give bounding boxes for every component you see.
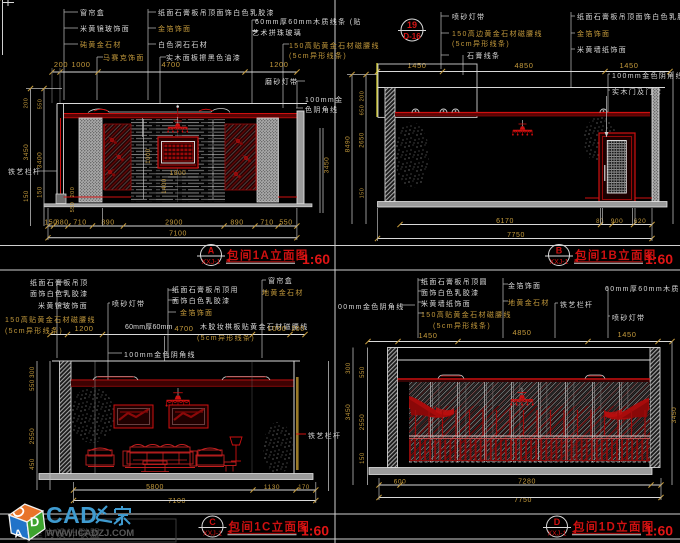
- svg-text:包间1A立面图: 包间1A立面图: [226, 248, 309, 262]
- svg-text:喷砂灯带: 喷砂灯带: [112, 299, 145, 308]
- svg-text:XXJ-1: XXJ-1: [547, 531, 566, 538]
- svg-text:1450: 1450: [408, 61, 427, 70]
- svg-text:窗帘盒: 窗帘盒: [268, 276, 293, 285]
- svg-text:铁艺栏杆: 铁艺栏杆: [8, 167, 41, 176]
- svg-text:7100: 7100: [168, 498, 186, 505]
- svg-text:金箔饰面: 金箔饰面: [158, 24, 191, 33]
- svg-text:面饰白色乳胶漆: 面饰白色乳胶漆: [421, 288, 479, 297]
- svg-text:60mm厚60mm: 60mm厚60mm: [125, 323, 173, 331]
- svg-text:A: A: [208, 246, 215, 256]
- svg-text:艺术拼珠玻璃: 艺术拼珠玻璃: [252, 28, 302, 37]
- svg-text:2550: 2550: [359, 414, 366, 431]
- svg-text:1400: 1400: [162, 178, 168, 194]
- svg-text:金箔饰面: 金箔饰面: [180, 308, 213, 317]
- svg-text:(5cm异形线条): (5cm异形线条): [433, 321, 491, 330]
- svg-text:纸面石膏板吊顶面饰白色乳胶漆: 纸面石膏板吊顶面饰白色乳胶漆: [158, 8, 275, 17]
- svg-text:B: B: [556, 246, 563, 256]
- svg-text:XXJ-1: XXJ-1: [201, 259, 220, 266]
- svg-text:550: 550: [70, 202, 76, 213]
- svg-text:白色洞石石材: 白色洞石石材: [158, 40, 208, 49]
- svg-text:1:60: 1:60: [645, 523, 673, 539]
- svg-text:1:60: 1:60: [302, 251, 330, 267]
- svg-text:C: C: [209, 517, 216, 527]
- svg-text:1200: 1200: [270, 60, 289, 69]
- svg-text:1:60: 1:60: [301, 523, 329, 539]
- svg-text:D: D: [554, 517, 561, 527]
- svg-text:200: 200: [24, 98, 30, 109]
- svg-text:金箔饰面: 金箔饰面: [577, 29, 610, 38]
- svg-text:米黄墙纸饰面: 米黄墙纸饰面: [421, 299, 471, 308]
- svg-text:00mm金色阴角线: 00mm金色阴角线: [338, 302, 405, 311]
- svg-text:150高贴黄金石材磁腰线: 150高贴黄金石材磁腰线: [5, 315, 96, 324]
- svg-text:100mm金色阴角线: 100mm金色阴角线: [124, 350, 196, 359]
- svg-text:150: 150: [24, 190, 30, 202]
- svg-text:D: D: [29, 514, 39, 529]
- svg-text:7750: 7750: [507, 232, 525, 239]
- svg-text:米黄镜玻饰面: 米黄镜玻饰面: [80, 24, 130, 33]
- svg-text:300: 300: [346, 362, 352, 374]
- svg-text:XXJ-1: XXJ-1: [203, 531, 222, 538]
- svg-text:7750: 7750: [514, 497, 532, 504]
- svg-text:1800: 1800: [170, 170, 187, 177]
- svg-text:砘黄金石材: 砘黄金石材: [80, 40, 122, 49]
- svg-text:1450: 1450: [419, 331, 438, 340]
- svg-text:200: 200: [54, 60, 68, 69]
- svg-text:150: 150: [360, 452, 366, 464]
- svg-text:A: A: [14, 528, 23, 541]
- svg-text:60mm厚60mm木质线条 (贴: 60mm厚60mm木质线条 (贴: [605, 284, 680, 293]
- svg-text:19: 19: [407, 20, 417, 30]
- svg-text:150高贴黄金石材磁腰线: 150高贴黄金石材磁腰线: [289, 41, 380, 50]
- svg-text:XXJ-1: XXJ-1: [549, 259, 568, 266]
- svg-text:150高贴黄金石材磁腰线: 150高贴黄金石材磁腰线: [421, 310, 512, 319]
- svg-text:150高边黄金石材磁腰线: 150高边黄金石材磁腰线: [452, 29, 543, 38]
- svg-text:200: 200: [291, 326, 304, 333]
- svg-text:7100: 7100: [169, 231, 187, 238]
- svg-text:3450: 3450: [345, 404, 352, 421]
- svg-text:7280: 7280: [518, 479, 536, 486]
- svg-text:650: 650: [360, 105, 366, 116]
- svg-text:100mm金: 100mm金: [305, 95, 343, 104]
- svg-text:150: 150: [38, 186, 44, 198]
- svg-text:铁艺栏杆: 铁艺栏杆: [560, 300, 593, 309]
- svg-text:1450: 1450: [618, 330, 637, 339]
- svg-text:金箔饰面: 金箔饰面: [508, 281, 541, 290]
- svg-text:3400: 3400: [37, 152, 44, 169]
- svg-text:300: 300: [30, 366, 36, 378]
- svg-text:喷砂灯带: 喷砂灯带: [452, 12, 485, 21]
- svg-text:(5cm异形线条): (5cm异形线条): [5, 326, 63, 335]
- svg-text:WWW.ICADZJ.COM: WWW.ICADZJ.COM: [46, 528, 134, 539]
- svg-text:2650: 2650: [360, 132, 366, 148]
- svg-text:200: 200: [360, 91, 366, 102]
- svg-text:色阴角线: 色阴角线: [305, 105, 338, 114]
- svg-text:地黄金石材: 地黄金石材: [508, 298, 550, 307]
- svg-text:马赛克饰面: 马赛克饰面: [103, 53, 145, 62]
- svg-text:4700: 4700: [175, 324, 194, 333]
- svg-text:纸面石膏板吊顶用: 纸面石膏板吊顶用: [172, 285, 239, 294]
- svg-text:(5cm异形线条): (5cm异形线条): [289, 51, 347, 60]
- svg-text:CAD: CAD: [46, 502, 97, 528]
- svg-text:包间1C立面图: 包间1C立面图: [228, 520, 311, 534]
- svg-text:4850: 4850: [515, 61, 534, 70]
- svg-text:面饰白色乳胶漆: 面饰白色乳胶漆: [30, 289, 88, 298]
- svg-text:3450: 3450: [324, 157, 331, 174]
- svg-text:6170: 6170: [496, 218, 514, 225]
- svg-text:D-16: D-16: [403, 32, 421, 41]
- svg-text:450: 450: [30, 458, 36, 470]
- svg-text:包间1D立面图: 包间1D立面图: [572, 520, 655, 534]
- svg-text:8490: 8490: [345, 136, 352, 153]
- svg-text:(5cm异形线条): (5cm异形线条): [452, 39, 510, 48]
- svg-text:550: 550: [360, 366, 366, 378]
- svg-text:3450: 3450: [671, 407, 678, 424]
- svg-text:窗帘盒: 窗帘盒: [80, 8, 105, 17]
- svg-text:1:60: 1:60: [645, 251, 673, 267]
- svg-text:4700: 4700: [162, 60, 181, 69]
- svg-text:磨砂灯带: 磨砂灯带: [265, 77, 298, 86]
- svg-text:60mm厚60mm木质线条 (贴: 60mm厚60mm木质线条 (贴: [255, 17, 362, 26]
- svg-text:1450: 1450: [620, 61, 639, 70]
- svg-text:550: 550: [38, 99, 44, 110]
- svg-text:米黄镜玻饰面: 米黄镜玻饰面: [38, 301, 88, 310]
- svg-text:1000: 1000: [146, 148, 152, 164]
- svg-text:620: 620: [634, 218, 647, 225]
- svg-text:米黄墙纸饰面: 米黄墙纸饰面: [577, 45, 627, 54]
- svg-text:3450: 3450: [23, 144, 30, 161]
- svg-text:1000: 1000: [72, 60, 91, 69]
- svg-text:纸面石膏板吊顶面饰白色乳胶漆: 纸面石膏板吊顶面饰白色乳胶漆: [577, 12, 680, 21]
- svg-text:面饰白色乳胶漆: 面饰白色乳胶漆: [172, 296, 230, 305]
- svg-text:地黄金石材: 地黄金石材: [262, 288, 304, 297]
- svg-text:石膏线条: 石膏线条: [467, 51, 500, 60]
- svg-text:铁艺栏杆: 铁艺栏杆: [308, 431, 341, 440]
- svg-text:纸面石膏板吊顶: 纸面石膏板吊顶: [30, 278, 88, 287]
- svg-text:200: 200: [70, 187, 76, 198]
- svg-text:2550: 2550: [29, 428, 36, 445]
- svg-text:550: 550: [30, 379, 36, 391]
- svg-text:纸面石膏板吊顶圆: 纸面石膏板吊顶圆: [421, 277, 488, 286]
- svg-text:1000: 1000: [268, 324, 287, 333]
- svg-text:1200: 1200: [75, 324, 94, 333]
- svg-text:喷砂灯带: 喷砂灯带: [612, 313, 645, 322]
- svg-text:4850: 4850: [513, 328, 532, 337]
- svg-text:150: 150: [360, 188, 366, 199]
